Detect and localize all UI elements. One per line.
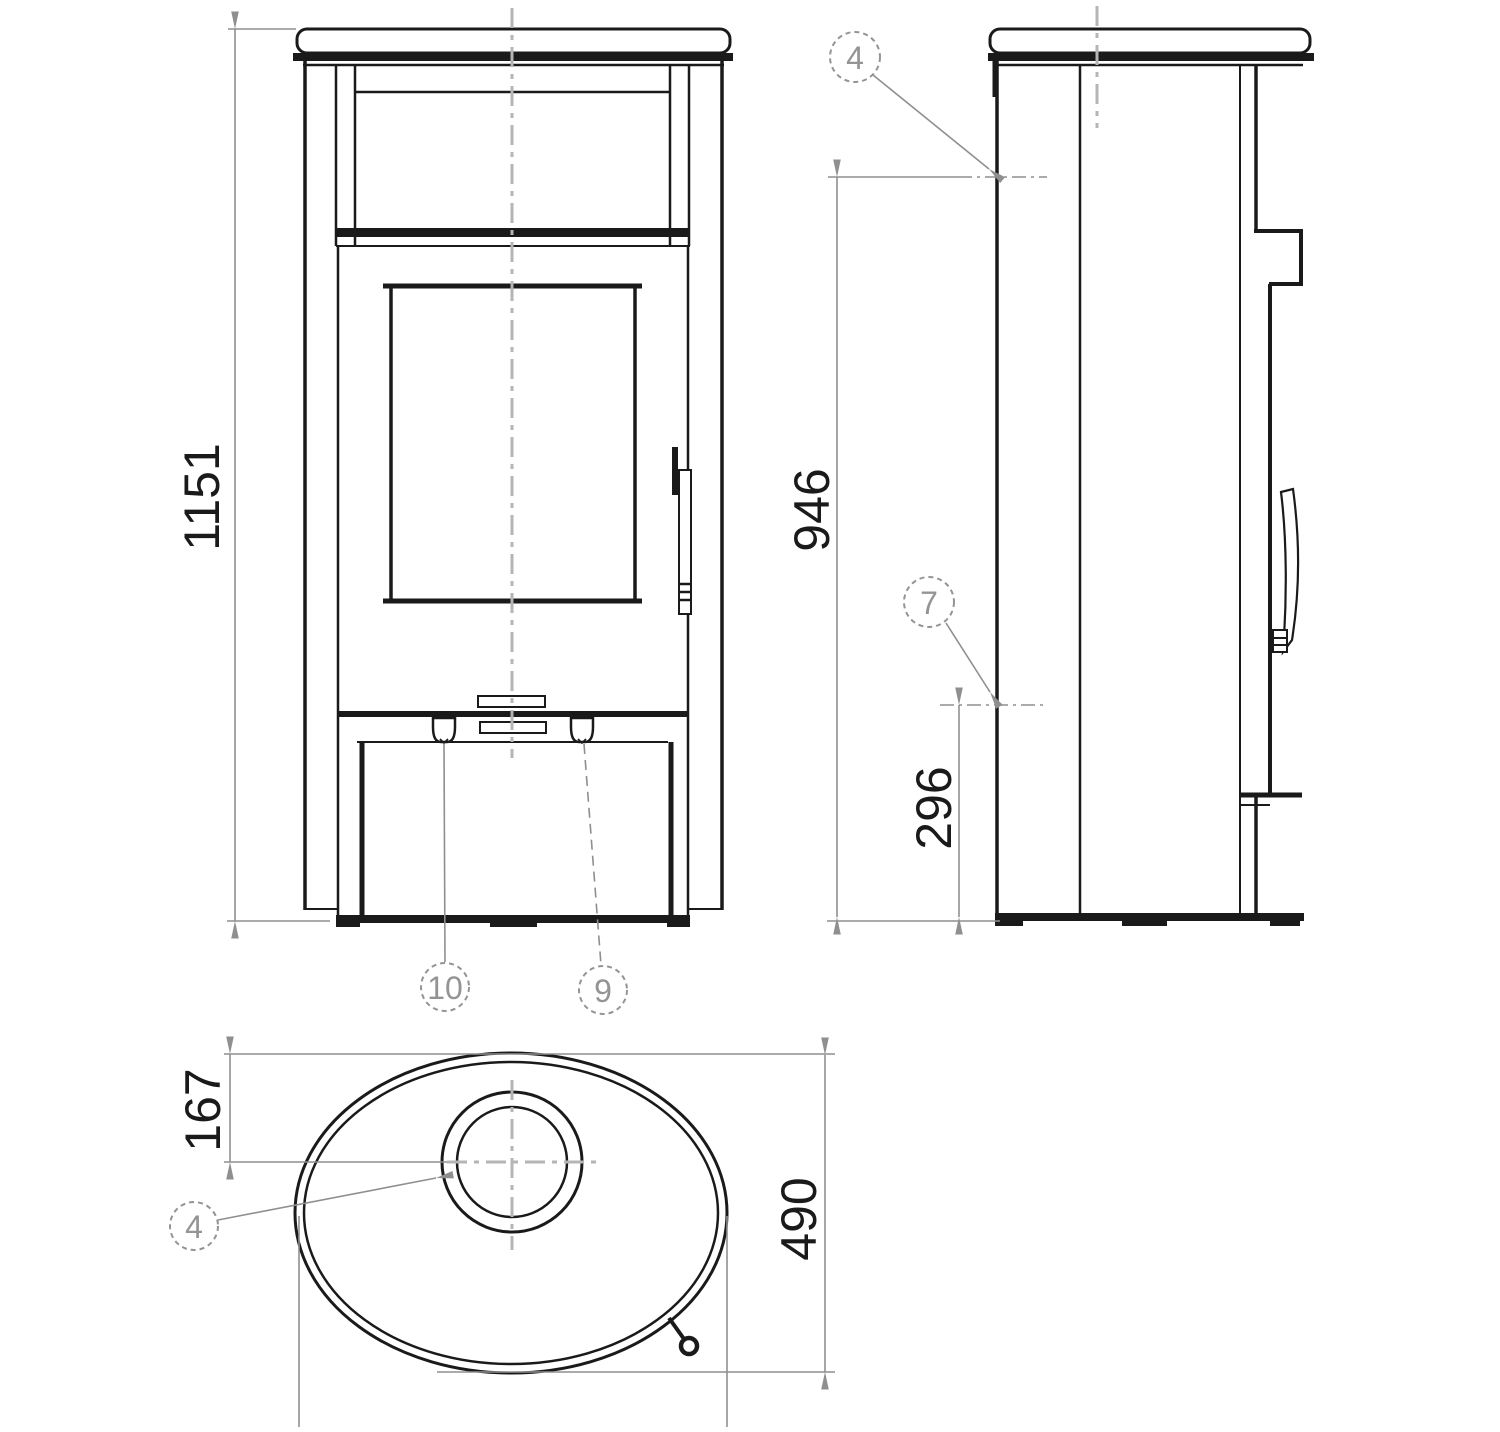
dim-296-value: 296 <box>906 766 962 849</box>
front-view <box>293 8 733 927</box>
side-foot-front <box>1270 921 1300 926</box>
dimension-490: 490 <box>771 1055 827 1372</box>
side-top-plate <box>990 29 1310 53</box>
callout-4-side: 4 <box>830 32 989 169</box>
knob-body <box>571 718 593 742</box>
stove-dimension-drawing: 1151 10 9 <box>0 0 1500 1427</box>
callout-7: 7 <box>904 577 990 692</box>
callout-4-side-leader <box>873 75 989 169</box>
top-view <box>224 1053 835 1427</box>
callout-10: 10 <box>421 744 469 1011</box>
callout-9-leader <box>584 744 601 965</box>
callout-10-leader <box>444 744 445 962</box>
callout-4-side-number: 4 <box>846 40 864 76</box>
dim-490-value: 490 <box>771 1177 827 1260</box>
dim-1151-value: 1151 <box>174 443 230 551</box>
side-foot-middle <box>1122 921 1167 926</box>
callout-10-number: 10 <box>427 970 463 1006</box>
air-control-knob-left <box>433 718 455 743</box>
side-top-plate-band <box>988 53 1314 61</box>
callout-9-number: 9 <box>594 973 612 1009</box>
technical-drawing: 1151 10 9 <box>0 0 1500 1427</box>
side-base-band <box>995 913 1304 921</box>
top-door-hook <box>669 1318 697 1354</box>
knob-body <box>433 718 455 742</box>
dimension-296: 296 <box>906 705 1046 917</box>
callout-4-top-number: 4 <box>185 1209 203 1245</box>
dim-167-value: 167 <box>175 1068 231 1151</box>
handle-latch <box>672 447 678 495</box>
side-view <box>988 6 1314 926</box>
front-foot-center <box>490 922 537 927</box>
front-foot-right <box>667 922 690 927</box>
front-foot-left <box>336 922 360 927</box>
side-handle-mount <box>1273 630 1287 652</box>
callout-9: 9 <box>579 744 627 1014</box>
callout-7-leader <box>946 623 990 692</box>
dim-946-value: 946 <box>784 468 840 551</box>
hook-arm <box>669 1318 684 1339</box>
front-base-band <box>336 915 690 923</box>
air-control-knob-right <box>571 718 593 743</box>
front-door-handle <box>672 447 691 614</box>
dimension-167: 167 <box>175 1054 231 1162</box>
side-handle-bar <box>1281 489 1298 652</box>
callout-7-number: 7 <box>920 585 938 621</box>
hook-ring <box>681 1338 697 1354</box>
side-door-handle <box>1273 489 1298 652</box>
